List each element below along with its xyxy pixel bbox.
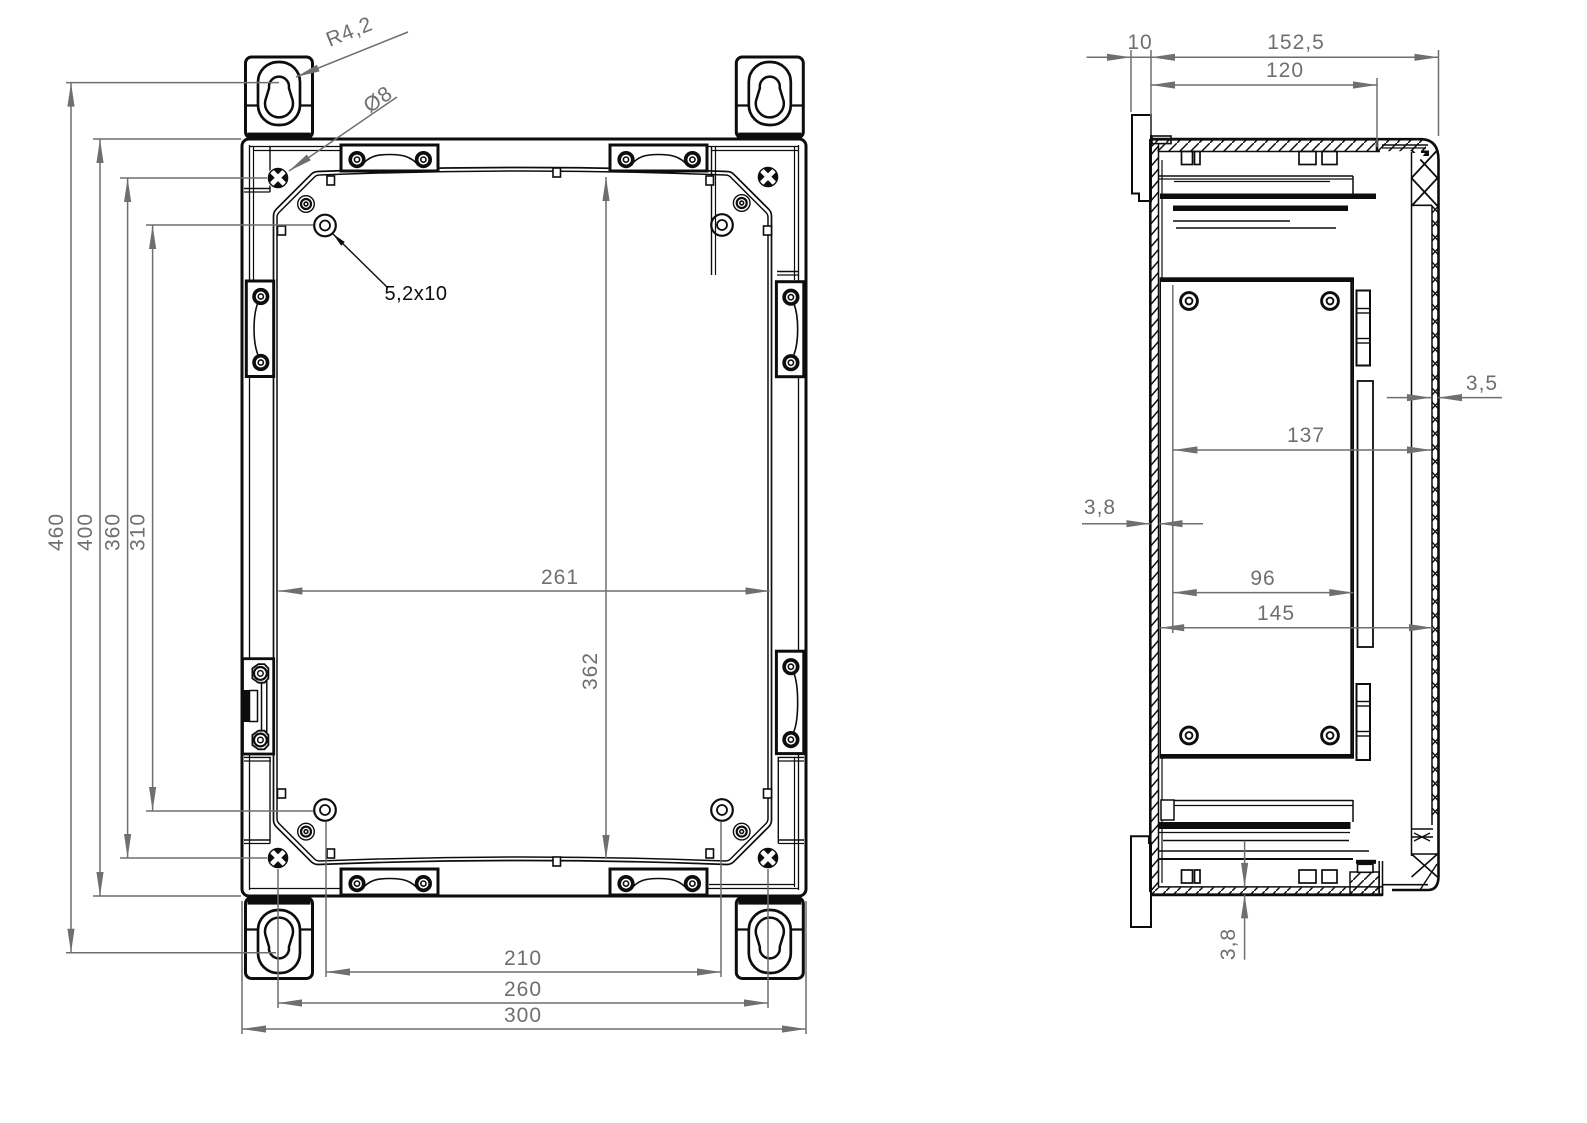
svg-text:210: 210 (504, 947, 542, 970)
svg-text:460: 460 (45, 513, 68, 551)
svg-text:260: 260 (504, 978, 542, 1001)
svg-text:145: 145 (1257, 602, 1295, 625)
svg-text:3,8: 3,8 (1084, 496, 1116, 519)
svg-text:120: 120 (1266, 59, 1304, 82)
svg-text:96: 96 (1250, 567, 1275, 590)
svg-text:152,5: 152,5 (1267, 31, 1325, 54)
svg-text:10: 10 (1127, 31, 1152, 54)
svg-text:300: 300 (504, 1004, 542, 1027)
svg-text:362: 362 (579, 652, 602, 690)
svg-text:5,2x10: 5,2x10 (384, 283, 447, 305)
svg-text:310: 310 (127, 513, 150, 551)
svg-text:137: 137 (1287, 424, 1325, 447)
svg-text:400: 400 (74, 513, 97, 551)
svg-text:3,5: 3,5 (1466, 372, 1498, 395)
svg-text:3,8: 3,8 (1217, 928, 1240, 960)
svg-text:261: 261 (541, 566, 579, 589)
svg-text:360: 360 (102, 513, 125, 551)
